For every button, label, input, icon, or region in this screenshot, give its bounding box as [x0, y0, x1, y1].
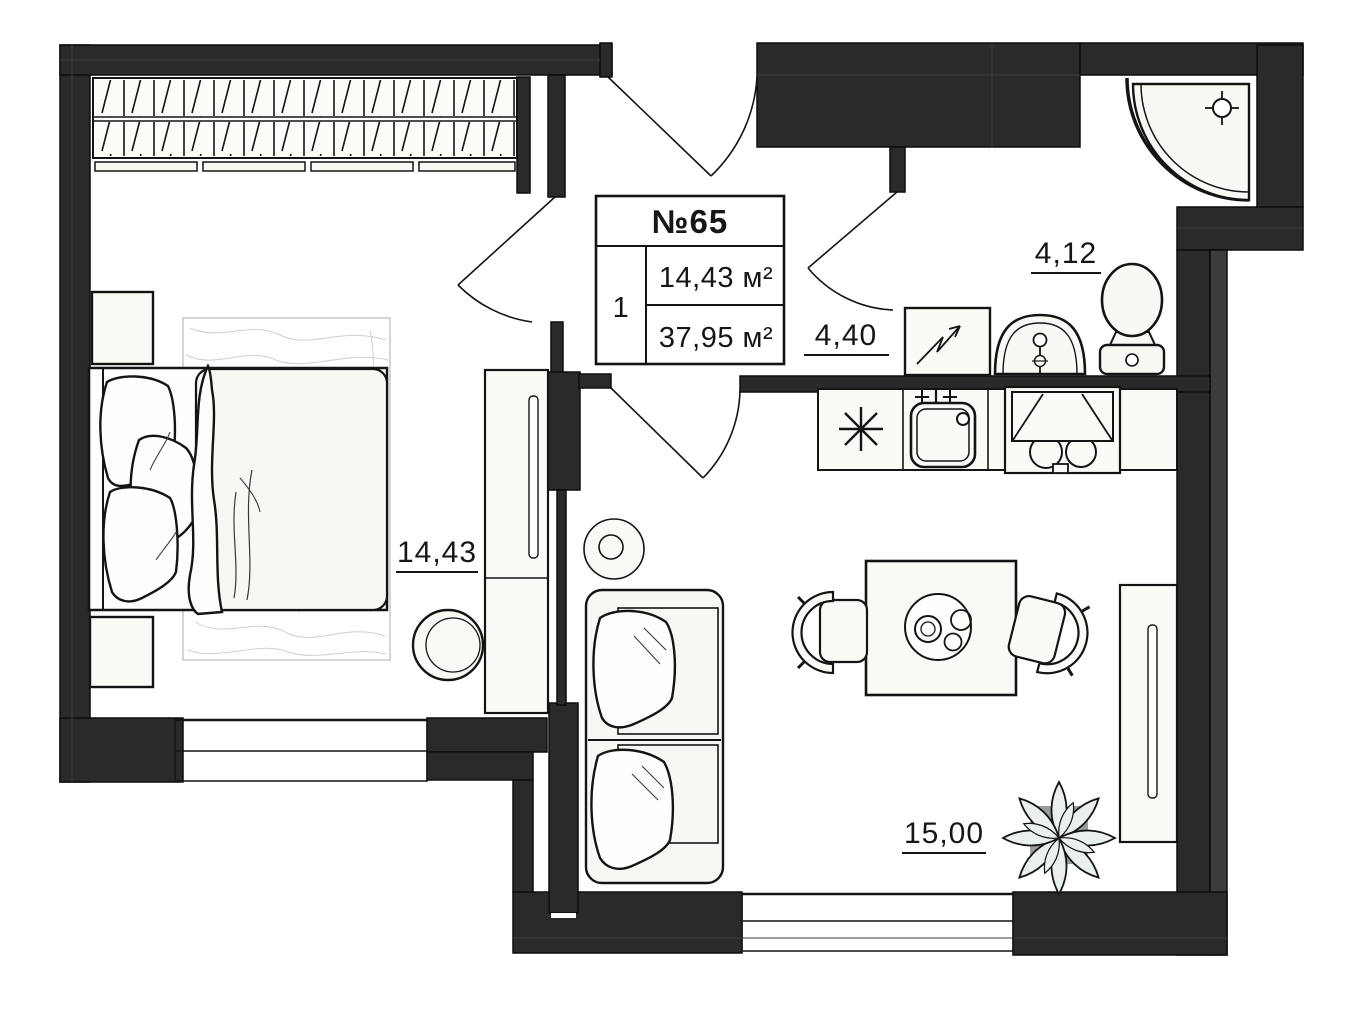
wall-bathroom-door-stub [890, 147, 905, 192]
wall-step [427, 752, 533, 780]
unit-total-area: 37,95 м² [659, 322, 773, 354]
bedroom-cabinet [485, 370, 548, 713]
cooktop-with-hood [1005, 387, 1120, 473]
plant [1003, 782, 1115, 894]
kitchen-counter [818, 387, 1177, 473]
washbasin [995, 315, 1085, 374]
chair-right [1004, 585, 1096, 682]
bedroom-area-label: 14,43 [397, 536, 477, 569]
wall-bottom-left-of-window [513, 892, 742, 953]
window-bedroom [175, 718, 427, 782]
wall-after-bedroom-window [427, 718, 547, 752]
chair-left [793, 592, 868, 673]
wall-pier-notch [551, 913, 576, 918]
wall-wardrobe-end-pier [517, 77, 530, 193]
floor-plan: №65 1 14,43 м² 37,95 м² 14,43 4,40 4,12 … [0, 0, 1363, 1024]
wardrobe [93, 78, 517, 171]
wall-bottom-right [1013, 892, 1227, 955]
wall-right [1177, 250, 1210, 955]
unit-number: №65 [652, 203, 729, 240]
pouf [413, 610, 483, 680]
bedroom-door [458, 197, 555, 322]
wall-bedroom-living-thin [557, 490, 566, 705]
wall-right-of-shower [1257, 45, 1303, 207]
toilet [1100, 264, 1164, 374]
extractor-hood [1012, 392, 1113, 441]
wardrobe-hanging-rail-bottom [95, 122, 515, 156]
wall-living-door-post-left [579, 374, 611, 388]
asterisk-appliance-symbol [839, 407, 883, 451]
bathroom-area-label: 4,12 [1035, 237, 1097, 270]
side-table [584, 519, 644, 579]
wall-right-outer-layer [1210, 250, 1227, 955]
living-room-door [611, 388, 740, 478]
double-bed [89, 366, 387, 614]
floor-plan-drawing: №65 1 14,43 м² 37,95 м² 14,43 4,40 4,12 … [0, 0, 1363, 1024]
bathroom-door [808, 192, 897, 310]
wall-entrance-post-left [600, 43, 612, 77]
wall-step-down [513, 780, 533, 892]
cabinet-handle-slot [1148, 625, 1157, 798]
cabinet-handle-slot [529, 396, 538, 558]
window-living-room [742, 892, 1013, 953]
entrance-door [608, 77, 757, 176]
wall-bedroom-living-upper [548, 372, 580, 490]
wardrobe-sliding-doors [95, 162, 515, 171]
wall-bedroom-bottom-corner [60, 718, 183, 782]
wall-bedroom-door-post [551, 322, 563, 374]
sofa [586, 590, 723, 883]
unit-rooms-count: 1 [613, 292, 630, 324]
living-room-area-label: 15,00 [904, 817, 984, 850]
nightstand-bottom [90, 617, 153, 687]
unit-info-card: №65 1 14,43 м² 37,95 м² [596, 196, 784, 364]
wall-pier-bedroom-living [549, 703, 578, 913]
unit-living-area: 14,43 м² [659, 262, 773, 294]
dining-table [866, 561, 1016, 695]
bed-mattress [196, 369, 387, 610]
hallway-area-label: 4,40 [815, 319, 877, 352]
wall-bedroom-hallway [548, 75, 565, 197]
wardrobe-hanging-rail-top [95, 80, 515, 116]
tall-cabinet [1120, 585, 1177, 842]
wall-left [60, 45, 90, 782]
corner-shower [1127, 78, 1249, 200]
vent-arrow-box [905, 308, 990, 375]
wall-top-niche [757, 43, 1080, 147]
nightstand-top [92, 292, 153, 364]
